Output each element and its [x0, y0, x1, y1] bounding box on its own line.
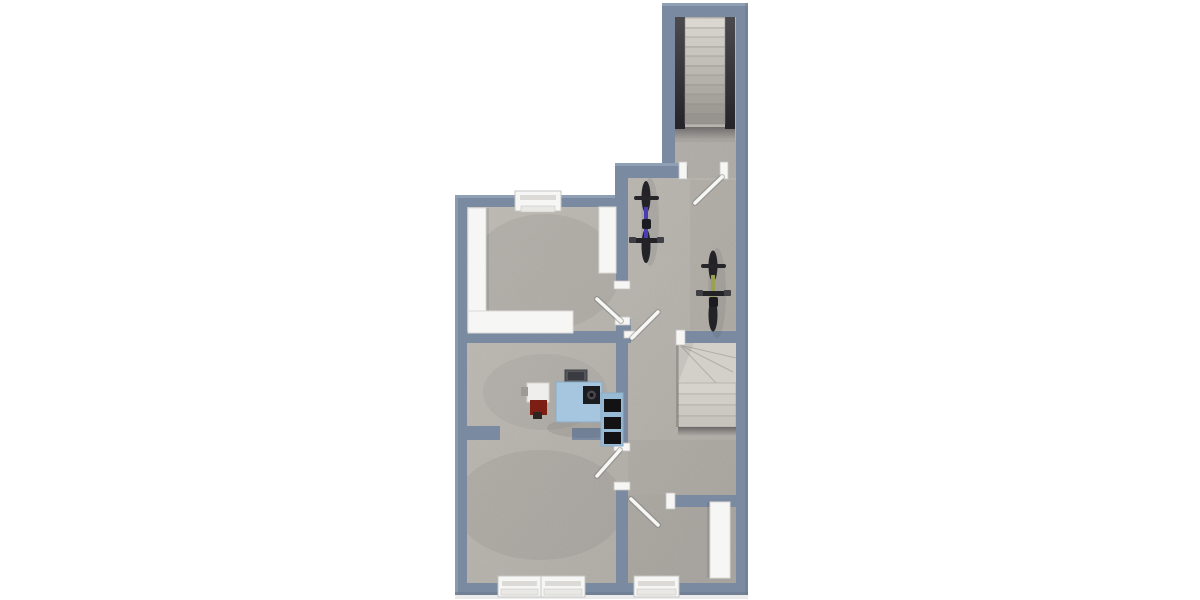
desk-black-panel-2 — [604, 417, 621, 429]
window-top-sill — [521, 206, 555, 212]
bicycle-2-seat — [709, 297, 718, 307]
stairs-lower-tread — [678, 405, 736, 416]
office-chair-base — [533, 412, 542, 419]
window-bottom-3-glass — [638, 581, 675, 586]
wall-highlight-left — [455, 195, 458, 595]
stairs-upper-tread — [685, 85, 725, 95]
wall-stub-left — [455, 426, 500, 440]
stairs-upper-tread — [685, 94, 725, 104]
bicycle-1-seat — [642, 219, 651, 229]
wall-partition-c — [678, 331, 736, 343]
desk-black-panel-1 — [604, 399, 621, 412]
bicycle-1-pedal-left — [629, 237, 636, 243]
wardrobe — [710, 502, 730, 578]
stairs-upper-tread — [685, 47, 725, 57]
bicycle-2-pedal-right — [724, 290, 731, 296]
wall-stair-hall-left — [662, 3, 675, 178]
stairs-upper-right-stringer — [725, 17, 735, 129]
window-bottom-2-glass — [545, 581, 581, 586]
stairs-lower-tread — [678, 416, 736, 427]
window-bottom-3-sill — [637, 589, 676, 595]
bicycle-2-handlebar — [701, 264, 726, 268]
window-bottom-1-glass — [502, 581, 537, 586]
bicycle-1-pedal-right — [657, 237, 664, 243]
wall-highlight-top — [662, 3, 748, 6]
stairs-upper-tread — [685, 75, 725, 85]
bicycle-1-handlebar — [634, 196, 659, 200]
stairs-lower-tread — [678, 394, 736, 405]
stairs-upper-tread — [685, 56, 725, 66]
office-chair-knob — [521, 387, 528, 396]
stairs-lower-tread — [678, 383, 736, 394]
door-bottom-room-jamb-bottom — [614, 482, 630, 490]
door-stair-hall-jamb-left — [679, 162, 687, 179]
stairs-upper-left-stringer — [675, 17, 685, 129]
desk-black-panel-3 — [604, 432, 621, 444]
shade-stair-hall-lower — [628, 440, 736, 495]
stairs-upper-tread — [685, 37, 725, 47]
stairs-upper-tread — [685, 18, 725, 28]
door-top-left-room-jamb-top — [614, 281, 630, 289]
office-chair-white — [527, 383, 549, 402]
wall-partition-a — [616, 195, 628, 285]
floor-plan-svg — [0, 0, 1200, 600]
window-bottom-2-sill — [544, 589, 582, 595]
stairs-winder-left-edge — [676, 343, 679, 427]
stairs-upper-tread — [685, 28, 725, 38]
desk-chair-back-inner — [568, 372, 584, 380]
desk-equipment-dot — [590, 393, 594, 397]
door-bottom-right-room-jamb — [666, 493, 675, 509]
counter-left-shadow — [486, 208, 489, 311]
window-top-glass — [520, 195, 556, 200]
stairs-upper-tread — [685, 114, 725, 124]
stairs-upper-bottom-shadow — [675, 127, 735, 143]
wall-edge-right — [745, 3, 748, 595]
counter-bottom — [468, 311, 573, 333]
stairs-upper-tread — [685, 104, 725, 114]
window-bottom-1-sill — [501, 589, 538, 595]
stairs-upper-tread — [685, 66, 725, 76]
wall-partition-g — [616, 487, 628, 583]
wall-highlight-step — [615, 163, 688, 166]
stairs-lower-bottom-shadow — [678, 427, 736, 436]
bicycle-2-pedal-left — [696, 290, 703, 296]
cabinet-tall — [599, 207, 616, 273]
door-hall-jamb-right — [676, 330, 685, 345]
floor-plan-stage — [0, 0, 1200, 600]
shade-bottom-room — [455, 450, 625, 560]
